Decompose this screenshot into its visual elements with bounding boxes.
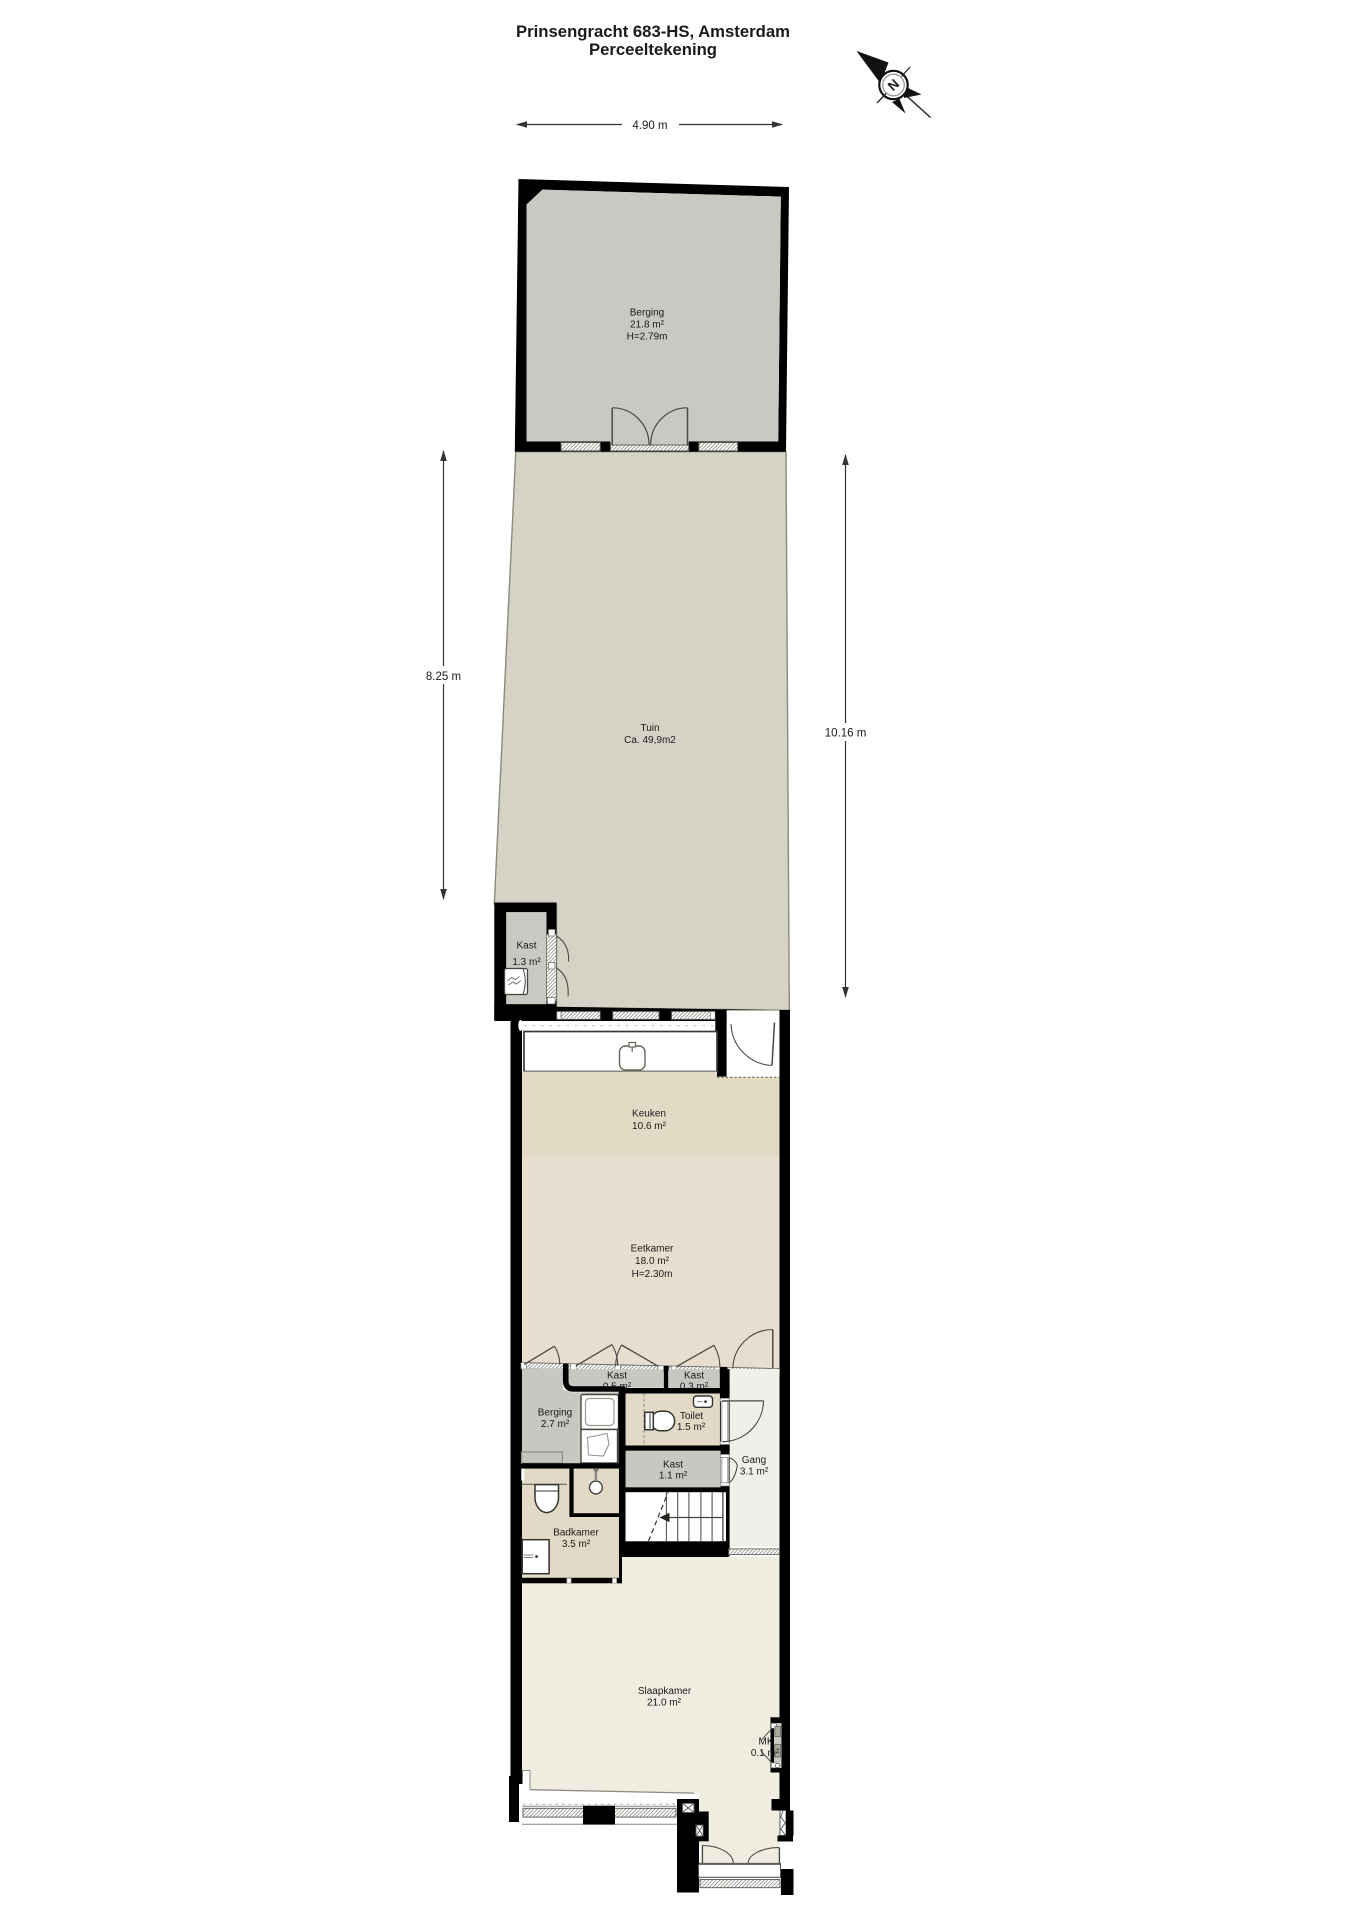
svg-text:Kast: Kast (607, 1370, 627, 1381)
svg-text:H=2.79m: H=2.79m (627, 332, 668, 343)
svg-text:10.6 m²: 10.6 m² (632, 1121, 667, 1132)
svg-text:Toilet: Toilet (680, 1411, 704, 1422)
svg-text:Tuin: Tuin (640, 723, 659, 734)
svg-text:Perceeltekening: Perceeltekening (589, 40, 717, 59)
svg-text:10.16 m: 10.16 m (825, 728, 867, 740)
svg-text:Keuken: Keuken (632, 1109, 666, 1120)
svg-text:Berging: Berging (630, 308, 664, 319)
svg-text:1.5 m²: 1.5 m² (677, 1422, 706, 1433)
svg-text:Berging: Berging (538, 1408, 572, 1419)
svg-text:Kast: Kast (684, 1370, 704, 1381)
svg-text:Eetkamer: Eetkamer (631, 1244, 674, 1255)
svg-text:Prinsengracht 683-HS, Amsterda: Prinsengracht 683-HS, Amsterdam (516, 22, 790, 41)
svg-text:Badkamer: Badkamer (553, 1527, 599, 1538)
svg-text:1.3 m²: 1.3 m² (512, 957, 541, 968)
svg-text:0.1 m²: 0.1 m² (751, 1748, 780, 1759)
svg-text:Kast: Kast (663, 1460, 683, 1471)
svg-text:MK: MK (759, 1737, 774, 1748)
svg-text:3.1 m²: 3.1 m² (740, 1467, 769, 1478)
svg-text:4.90 m: 4.90 m (632, 120, 667, 132)
svg-text:21.8 m²: 21.8 m² (630, 320, 665, 331)
svg-text:Gang: Gang (742, 1455, 766, 1466)
svg-text:H=2.30m: H=2.30m (632, 1269, 673, 1280)
svg-text:1.1 m²: 1.1 m² (659, 1471, 688, 1482)
svg-text:Slaapkamer: Slaapkamer (638, 1686, 692, 1697)
svg-text:Ca. 49,9m2: Ca. 49,9m2 (624, 735, 676, 746)
svg-text:3.5 m²: 3.5 m² (562, 1539, 591, 1550)
svg-text:2.7 m²: 2.7 m² (541, 1419, 570, 1430)
svg-text:Kast: Kast (516, 941, 536, 952)
svg-text:8.25 m: 8.25 m (426, 671, 461, 683)
svg-text:21.0 m²: 21.0 m² (647, 1698, 682, 1709)
svg-text:18.0 m²: 18.0 m² (635, 1256, 670, 1267)
